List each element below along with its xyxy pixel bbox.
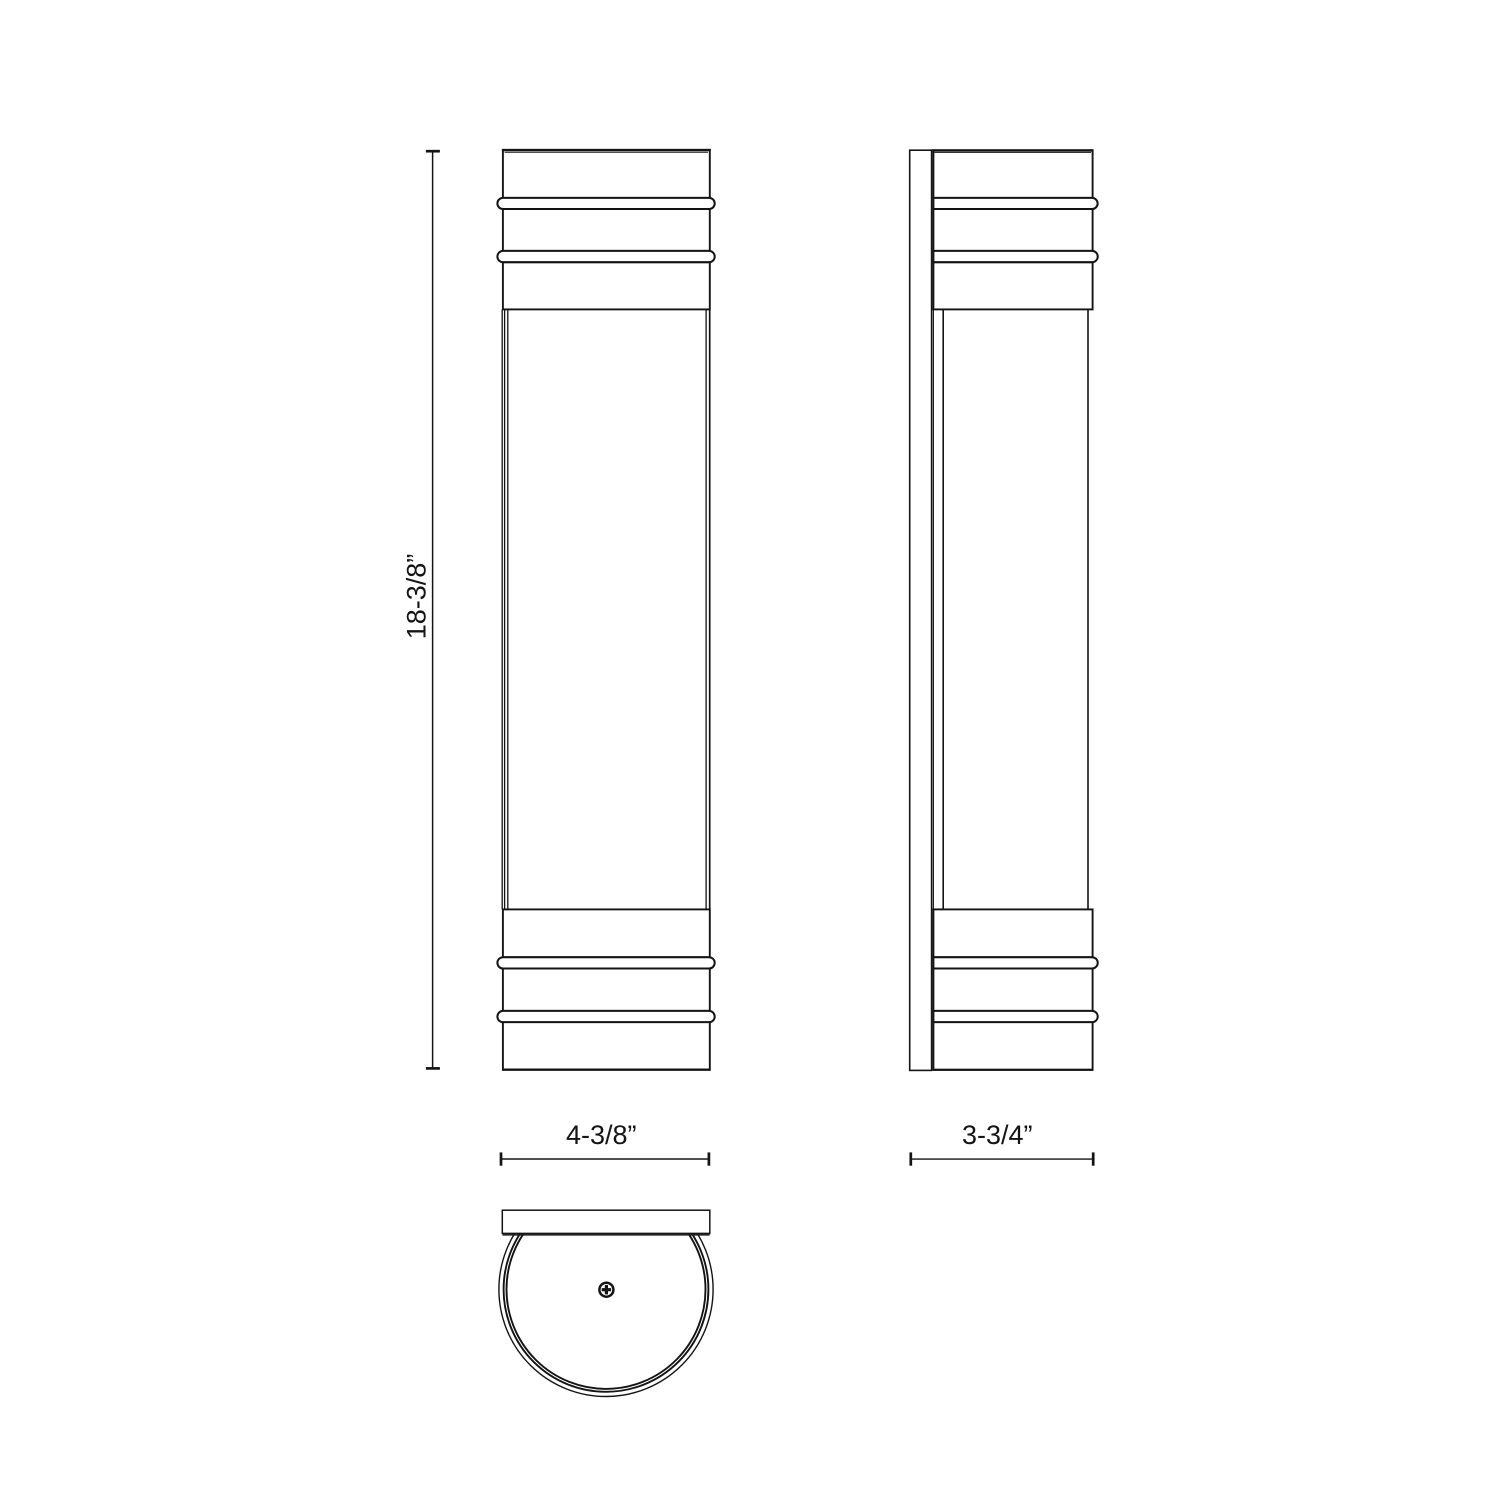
svg-text:18-3/8”: 18-3/8” [401, 554, 431, 640]
svg-text:3-3/4”: 3-3/4” [962, 1120, 1033, 1150]
svg-text:4-3/8”: 4-3/8” [566, 1120, 637, 1150]
